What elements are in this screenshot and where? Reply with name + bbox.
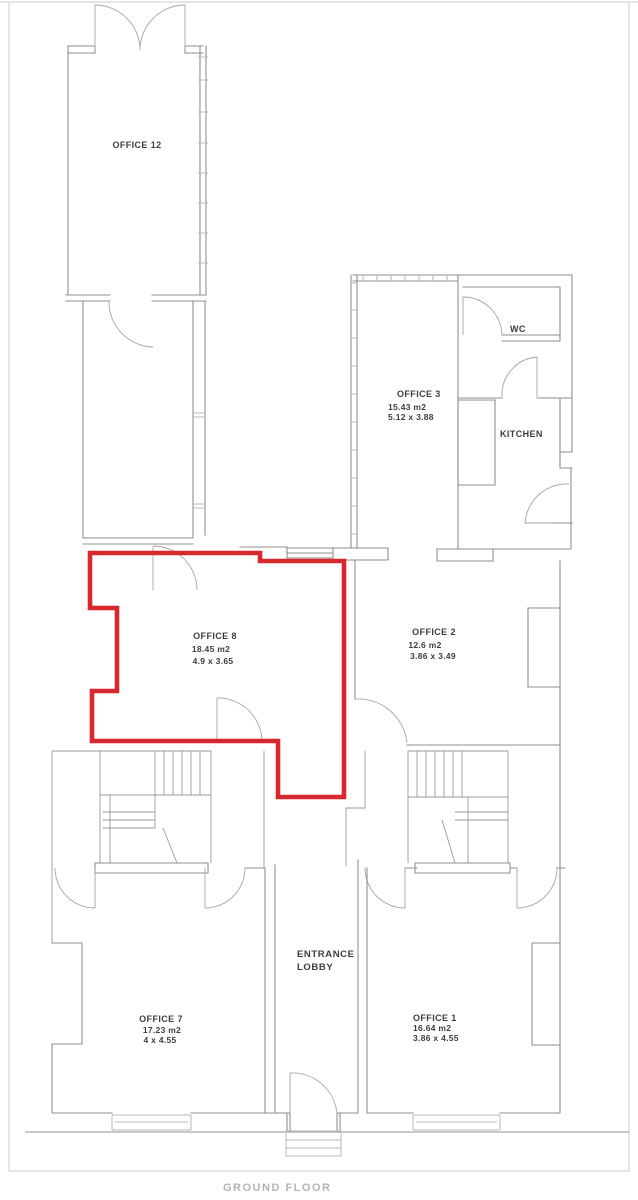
office7-top-wall (95, 863, 265, 873)
wc-kitchen-walls (458, 275, 572, 549)
office12-label: OFFICE 12 (112, 140, 161, 150)
office8-label: OFFICE 8 (193, 631, 237, 641)
office2-dims: 3.86 x 3.49 (410, 651, 456, 661)
office1-bay-window (413, 1115, 500, 1130)
corridor (83, 302, 205, 544)
office1-top-wall (405, 745, 565, 873)
lobby-label-line2: LOBBY (297, 962, 333, 973)
office3-label: OFFICE 3 (397, 389, 441, 399)
office8-door-bottom (217, 698, 262, 740)
wc-label: WC (510, 324, 526, 334)
office1-label: OFFICE 1 (413, 1013, 457, 1023)
floor-plan-drawing: OFFICE 12 OFFICE 3 15.43 m2 5.12 x 3.88 … (0, 0, 638, 1200)
drawing-frame (0, 2, 638, 1171)
staircase-left-lines (52, 751, 264, 943)
office3-dims: 5.12 x 3.88 (388, 412, 434, 422)
office1-walls (367, 868, 560, 1113)
wc-door (463, 297, 502, 335)
office1-area: 16.64 m2 (413, 1023, 451, 1033)
office12-double-door (95, 5, 185, 50)
office2-label: OFFICE 2 (412, 627, 456, 637)
office3-area: 15.43 m2 (388, 402, 426, 412)
office8-highlight-outline (90, 553, 344, 797)
floor-plan-page: OFFICE 12 OFFICE 3 15.43 m2 5.12 x 3.88 … (0, 0, 638, 1200)
staircase-right-lines (346, 751, 508, 866)
office2-door (355, 699, 407, 743)
room-wc-kitchen: WC KITCHEN (458, 275, 572, 549)
inner-lobby-door (502, 357, 537, 397)
entrance-door (290, 1073, 337, 1113)
hall-door-left (205, 868, 245, 908)
room-office7: OFFICE 7 17.23 m2 4 x 4.55 (52, 868, 265, 1130)
office8-dims: 4.9 x 3.65 (193, 656, 234, 666)
corridor-door-arc (109, 302, 153, 347)
office8-area: 18.45 m2 (192, 644, 230, 654)
staircase-right (346, 745, 565, 908)
entrance-steps (286, 1131, 341, 1156)
corridor-walls (83, 302, 205, 544)
entrance-lobby: ENTRANCE LOBBY (265, 860, 358, 1156)
office7-area: 17.23 m2 (143, 1025, 181, 1035)
office7-label: OFFICE 7 (139, 1014, 183, 1024)
office12-walls (66, 46, 206, 301)
kitchen-label: KITCHEN (500, 429, 543, 439)
room-office3: OFFICE 3 15.43 m2 5.12 x 3.88 (351, 275, 458, 549)
room-office8: OFFICE 8 18.45 m2 4.9 x 3.65 (90, 546, 388, 797)
office1-door-right (517, 868, 557, 908)
office7-bay-window (112, 1115, 191, 1130)
office7-door-left (55, 868, 95, 908)
lobby-walls (265, 860, 358, 1131)
frame-border (0, 2, 638, 1171)
corridor-window-ticks (193, 413, 205, 508)
office1-dims: 3.86 x 4.55 (413, 1033, 459, 1043)
office7-dims: 4 x 4.55 (143, 1035, 176, 1045)
office2-area: 12.6 m2 (408, 640, 441, 650)
office2-walls (355, 549, 571, 745)
office1-door-left (365, 868, 405, 908)
office7-walls (52, 868, 265, 1113)
lobby-label-line1: ENTRANCE (297, 949, 355, 960)
room-office2: OFFICE 2 12.6 m2 3.86 x 3.49 (355, 549, 571, 745)
staircase-left (52, 751, 265, 943)
floor-title: GROUND FLOOR (223, 1182, 331, 1194)
room-office12: OFFICE 12 (66, 5, 208, 301)
kitchen-door (525, 484, 569, 523)
